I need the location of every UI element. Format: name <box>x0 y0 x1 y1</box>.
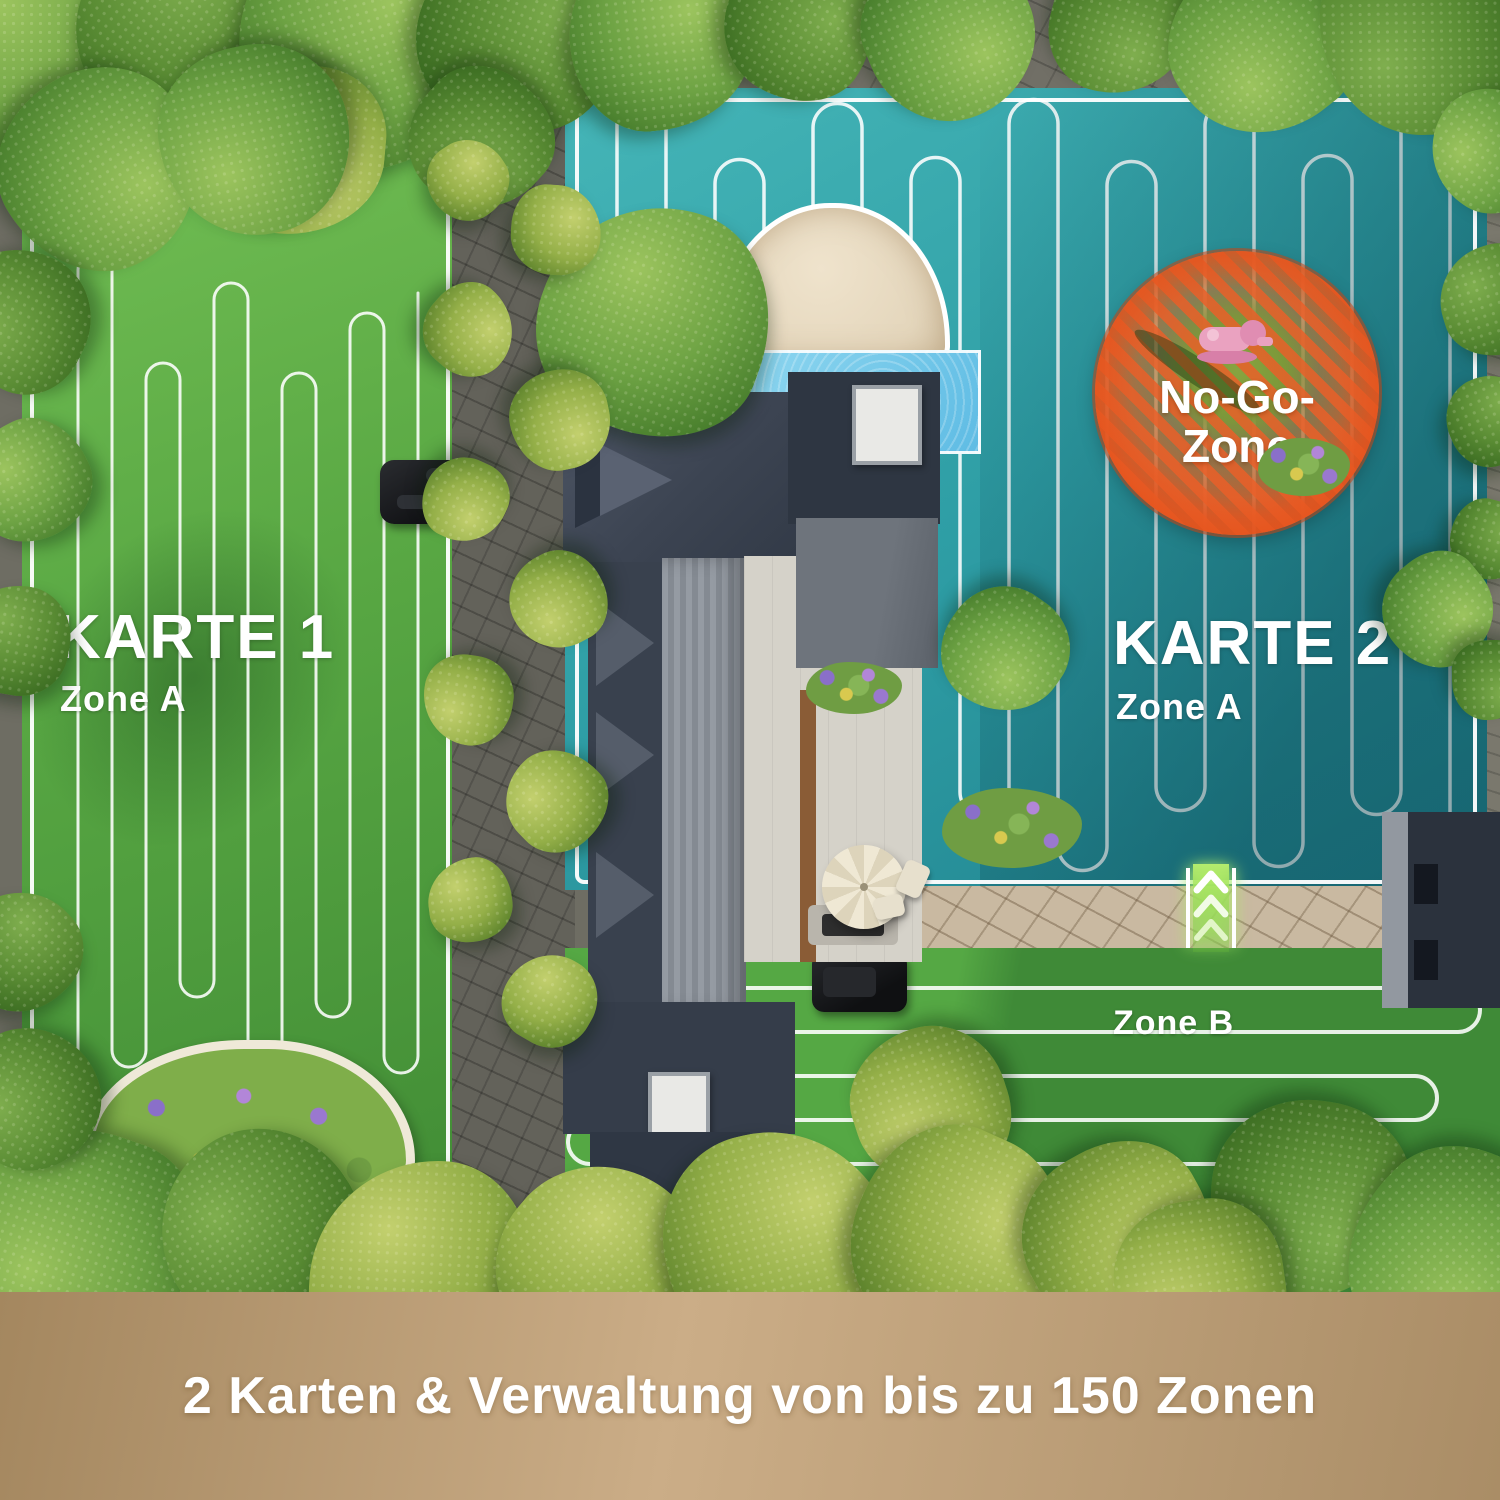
garage-window <box>1414 940 1438 980</box>
house-gray-wing <box>796 518 938 668</box>
top-pavement <box>0 0 1500 95</box>
garage-building <box>1382 812 1500 1008</box>
house-lower-roof-ext <box>590 1132 750 1242</box>
crossing-arrows-icon <box>1184 864 1238 952</box>
map1-title: KARTE 1 <box>56 602 335 673</box>
zone-b-label: Zone B <box>1113 1004 1234 1043</box>
center-stone-path <box>452 0 575 1292</box>
aerial-garden-scene: KARTE 1 Zone A No-Go- Zone <box>0 0 1500 1500</box>
map1-zone-a-label: Zone A <box>60 678 187 720</box>
map2-title: KARTE 2 <box>1113 608 1392 679</box>
mow-path-end-dot <box>1452 312 1467 327</box>
garage-wall <box>1382 812 1408 1008</box>
house-gray-roof <box>662 558 746 1012</box>
caption-text: 2 Karten & Verwaltung von bis zu 150 Zon… <box>183 1366 1317 1426</box>
skylight <box>852 385 922 465</box>
caption-band: 2 Karten & Verwaltung von bis zu 150 Zon… <box>0 1292 1500 1500</box>
skylight <box>648 1072 710 1138</box>
no-go-line1: No-Go- <box>1159 373 1315 422</box>
robot-mower-icon <box>380 460 452 524</box>
garage-window <box>1414 864 1438 904</box>
map2-zone-a-label: Zone A <box>1116 686 1243 728</box>
no-go-zone-label: No-Go- Zone <box>1095 251 1379 535</box>
map1-lawn: KARTE 1 Zone A <box>22 88 452 1292</box>
no-go-zone-circle: No-Go- Zone <box>1095 251 1379 535</box>
